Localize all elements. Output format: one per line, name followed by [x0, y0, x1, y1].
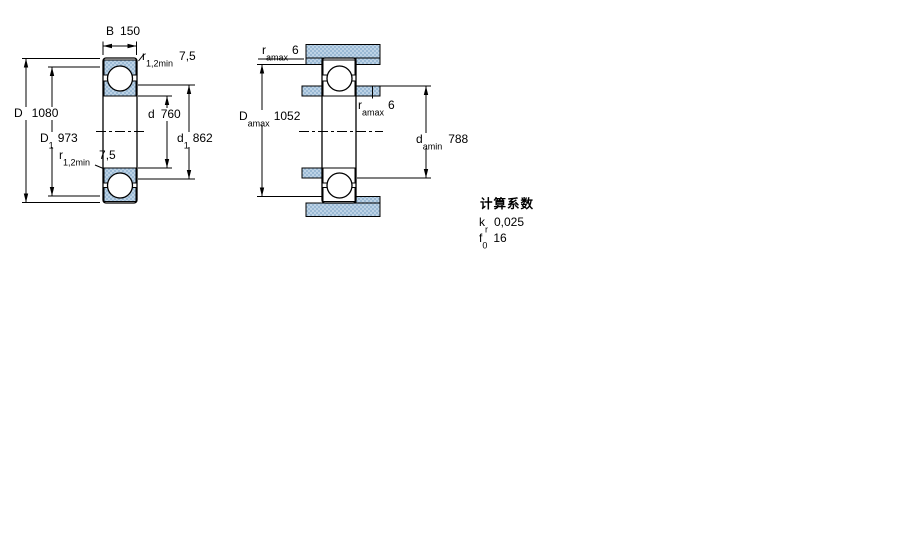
dim-value: 150	[120, 24, 140, 38]
dim-subscript: amax	[362, 109, 384, 118]
dim-symbol: B	[106, 24, 114, 38]
dim-label-bore-d: d760	[147, 108, 182, 121]
housing-top-block	[306, 45, 380, 59]
dim-label-shaft-fillet-ramax: ramax6	[358, 99, 395, 114]
dim-subscript: 1,2min	[146, 60, 173, 69]
dim-subscript: amin	[423, 143, 443, 152]
factor-value: 0,025	[494, 215, 524, 229]
factor-f0: f016	[479, 232, 507, 247]
drawing-linework	[0, 0, 900, 560]
dim-value: 6	[388, 98, 395, 112]
dim-value: 7,5	[179, 49, 196, 63]
dim-value: 862	[193, 131, 213, 145]
right-mounting-drawing	[257, 45, 431, 217]
shaft-shoulder-top-left	[302, 86, 322, 96]
dim-value: 760	[161, 107, 181, 121]
factor-subscript: 0	[482, 242, 487, 251]
dim-subscript: 1	[49, 142, 54, 151]
dim-subscript: 1	[184, 142, 189, 151]
dim-symbol: d	[177, 131, 184, 145]
dim-subscript: 1,2min	[63, 159, 90, 168]
dim-label-shoulder-d1: d1862	[176, 132, 214, 147]
dim-label-fillet-top: r1,2min7,5	[142, 50, 196, 65]
dim-label-fillet-mid: r1,2min7,5	[59, 149, 116, 164]
dim-symbol: D	[40, 131, 49, 145]
dim-label-housing-fillet-ramax: ramax6	[262, 44, 299, 59]
dim-value: 788	[448, 132, 468, 146]
dim-value: 7,5	[99, 148, 116, 162]
dim-subscript: amax	[248, 120, 270, 129]
dim-value: 6	[292, 43, 299, 57]
housing-shoulder-top-left	[306, 58, 322, 65]
dim-subscript: amax	[266, 54, 288, 63]
dim-symbol: d	[416, 132, 423, 146]
housing-shoulder-bottom-right	[356, 197, 380, 204]
shaft-shoulder-top-right	[356, 86, 380, 96]
factor-kr: kr0,025	[479, 216, 524, 231]
housing-shoulder-top-right	[356, 58, 380, 65]
dim-value: 973	[58, 131, 78, 145]
dim-label-width-B: B150	[106, 25, 140, 38]
dim-label-shaft-shoulder-damin: damin788	[415, 133, 469, 148]
dim-symbol: d	[148, 107, 155, 121]
dim-label-housing-shoulder-Damax: Damax1052	[238, 110, 301, 125]
housing-bottom-block	[306, 203, 380, 217]
dim-label-outer-diameter-D: D1080	[13, 107, 59, 120]
dim-symbol: D	[14, 106, 23, 120]
dim-symbol: D	[239, 109, 248, 123]
dim-label-shoulder-D1: D1973	[39, 132, 79, 147]
dim-value: 1080	[32, 106, 59, 120]
calculation-factors-title: 计算系数	[480, 193, 534, 212]
shaft-shoulder-bottom-left	[302, 168, 322, 178]
bearing-spec-page: B150 D1080 D1973 d760 d1862 r1,2min7,5 r…	[0, 0, 900, 560]
factor-value: 16	[493, 231, 506, 245]
dim-value: 1052	[274, 109, 301, 123]
